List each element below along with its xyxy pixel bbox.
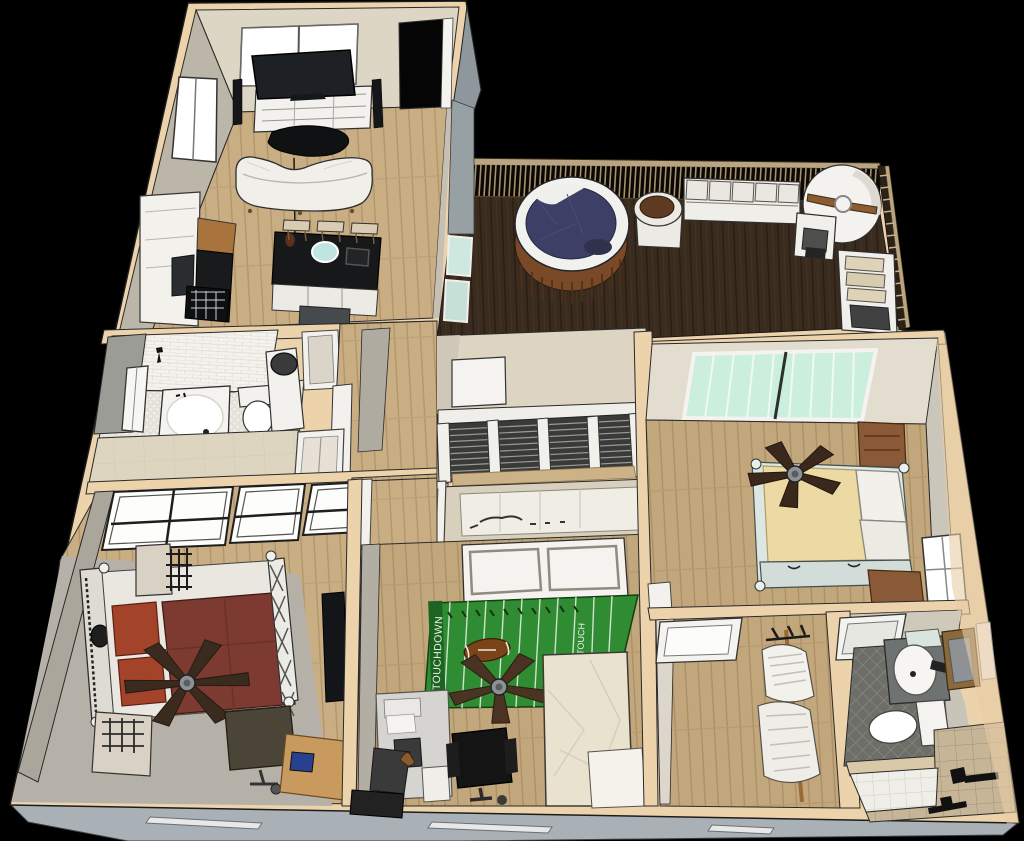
- svg-text:TOUCH: TOUCH: [575, 623, 586, 655]
